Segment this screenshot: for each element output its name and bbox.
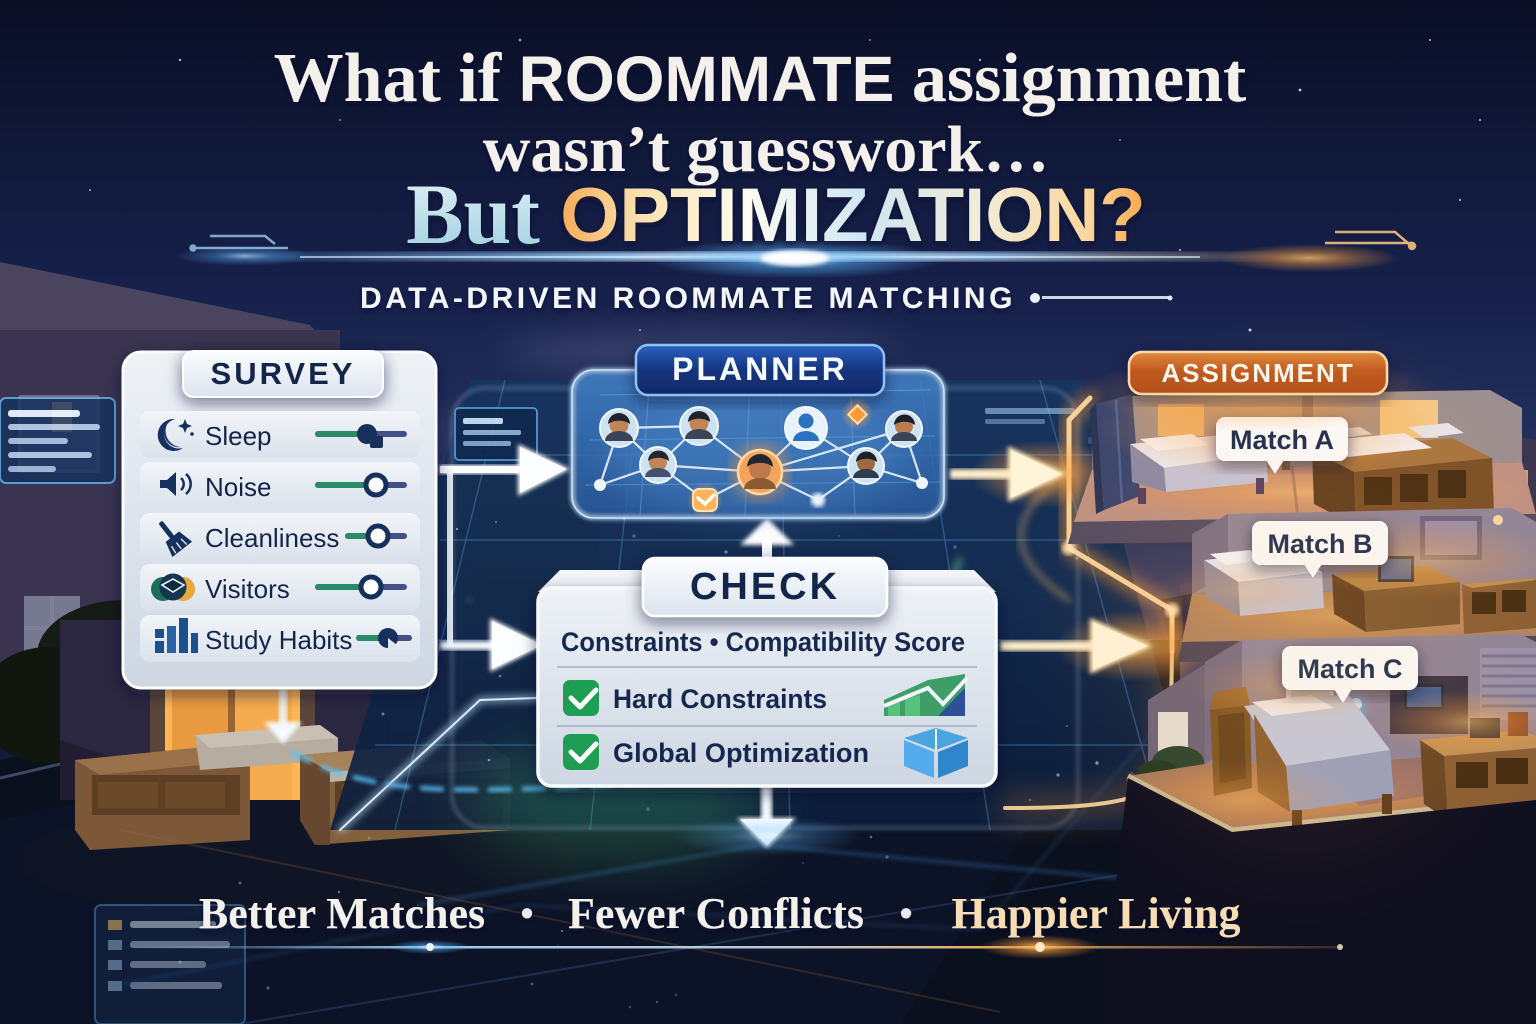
svg-text:•: • [521,892,534,933]
svg-text:Happier Living: Happier Living [952,889,1241,938]
svg-text:Better Matches: Better Matches [199,889,485,938]
svg-text:Hard Constraints: Hard Constraints [613,684,827,714]
svg-text:OPTIMIZATION?: OPTIMIZATION? [560,173,1145,258]
svg-text:Study Habits: Study Habits [205,625,352,655]
svg-text:Constraints • Compatibility Sc: Constraints • Compatibility Score [561,627,965,657]
svg-text:Sleep: Sleep [205,421,272,451]
svg-text:SURVEY: SURVEY [211,356,356,391]
svg-text:Noise: Noise [205,472,271,502]
svg-text:But: But [406,166,540,262]
svg-text:DATA-DRIVEN ROOMMATE MATCHING: DATA-DRIVEN ROOMMATE MATCHING [360,282,1016,315]
svg-text:Cleanliness: Cleanliness [205,523,339,553]
svg-text:What if ROOMMATE assignment: What if ROOMMATE assignment [274,40,1247,117]
svg-text:•: • [900,892,913,933]
svg-text:Fewer Conflicts: Fewer Conflicts [568,889,864,938]
svg-text:Visitors: Visitors [205,574,290,604]
svg-text:Global Optimization: Global Optimization [613,738,869,768]
svg-text:PLANNER: PLANNER [672,351,848,387]
svg-text:CHECK: CHECK [690,566,840,608]
